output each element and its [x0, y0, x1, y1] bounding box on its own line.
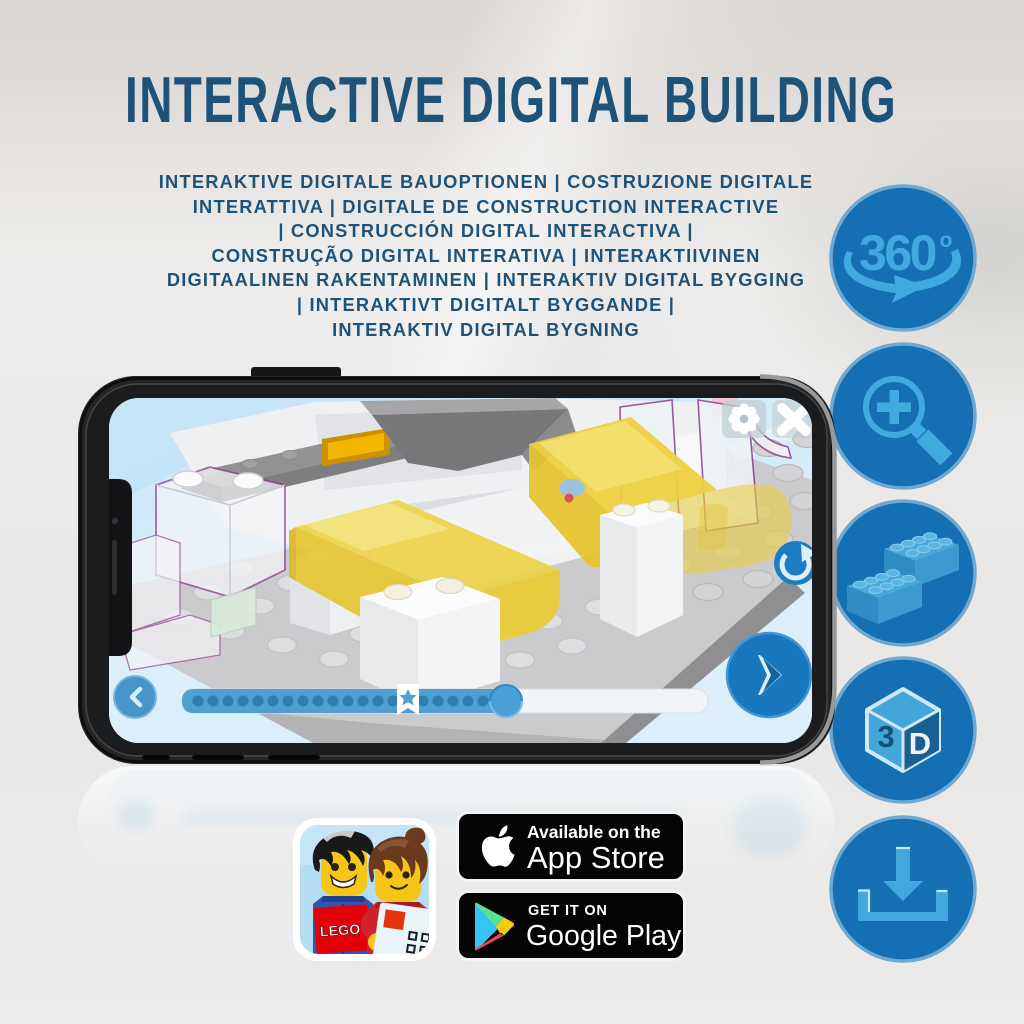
svg-text:Google Play: Google Play: [526, 920, 682, 952]
svg-text:Available on the: Available on the: [527, 822, 661, 842]
svg-text:LEGO: LEGO: [319, 921, 361, 940]
svg-text:GET IT ON: GET IT ON: [528, 903, 608, 919]
svg-text:App Store: App Store: [527, 840, 665, 875]
svg-text:D: D: [909, 726, 931, 761]
svg-text:360: 360: [859, 225, 936, 281]
svg-text:3: 3: [877, 719, 894, 754]
svg-text:o: o: [940, 229, 953, 252]
